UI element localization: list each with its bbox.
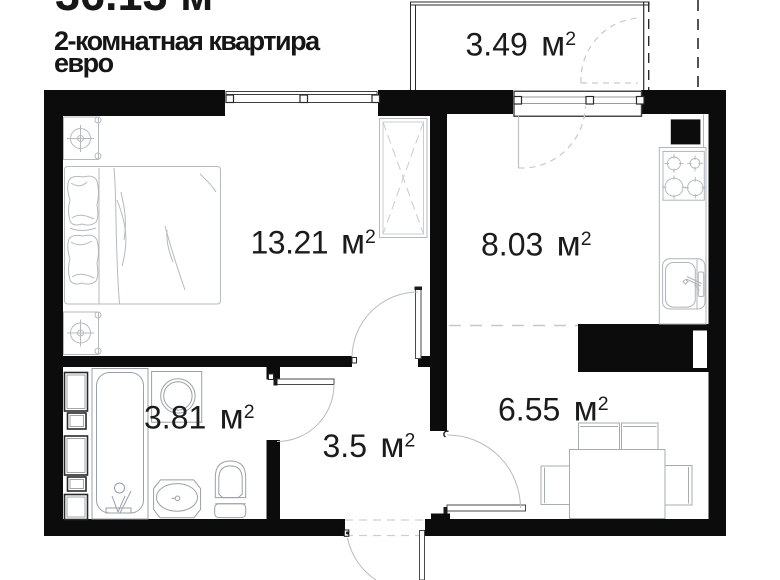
svg-text:3.49 м2: 3.49 м2 bbox=[466, 25, 577, 64]
svg-text:8.03 м2: 8.03 м2 bbox=[481, 225, 592, 264]
svg-text:3.5 м2: 3.5 м2 bbox=[323, 426, 416, 465]
svg-text:евро: евро bbox=[54, 48, 114, 78]
svg-text:36.13 м²: 36.13 м² bbox=[55, 0, 228, 20]
svg-text:6.55 м2: 6.55 м2 bbox=[498, 390, 609, 429]
svg-text:13.21 м2: 13.21 м2 bbox=[251, 223, 376, 262]
svg-text:3.81 м2: 3.81 м2 bbox=[144, 398, 255, 437]
